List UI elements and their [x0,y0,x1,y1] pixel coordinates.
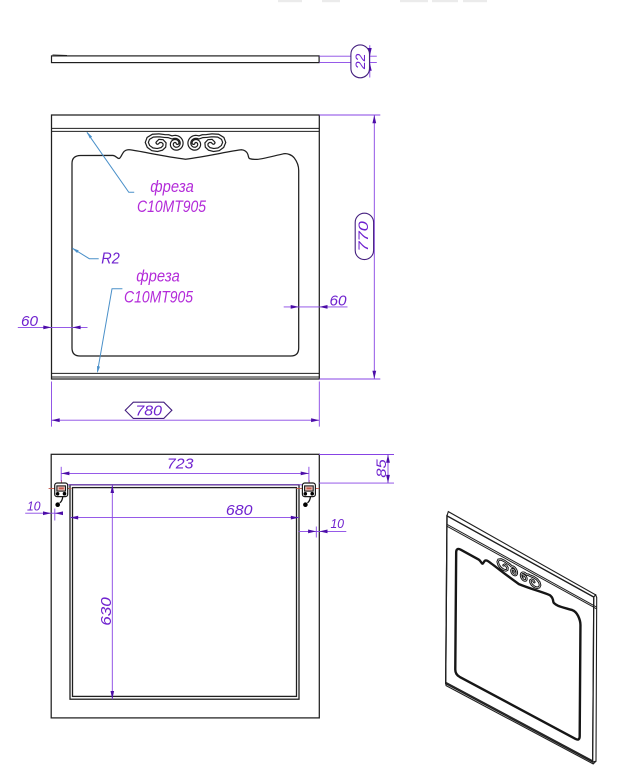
svg-text:770: 770 [355,221,371,252]
svg-text:630: 630 [98,597,115,626]
svg-text:60: 60 [21,313,39,330]
svg-text:R2: R2 [101,250,120,267]
svg-text:60: 60 [330,293,348,310]
svg-text:10: 10 [331,516,345,531]
svg-text:85: 85 [374,459,389,478]
svg-text:22: 22 [353,53,368,70]
svg-text:780: 780 [135,402,162,419]
svg-text:фреза: фреза [150,178,194,196]
svg-text:фреза: фреза [136,267,180,285]
svg-text:C10MT905: C10MT905 [124,289,194,307]
svg-text:C10MT905: C10MT905 [137,198,207,216]
svg-text:680: 680 [226,502,253,519]
svg-text:723: 723 [167,456,194,473]
svg-text:10: 10 [27,499,41,514]
